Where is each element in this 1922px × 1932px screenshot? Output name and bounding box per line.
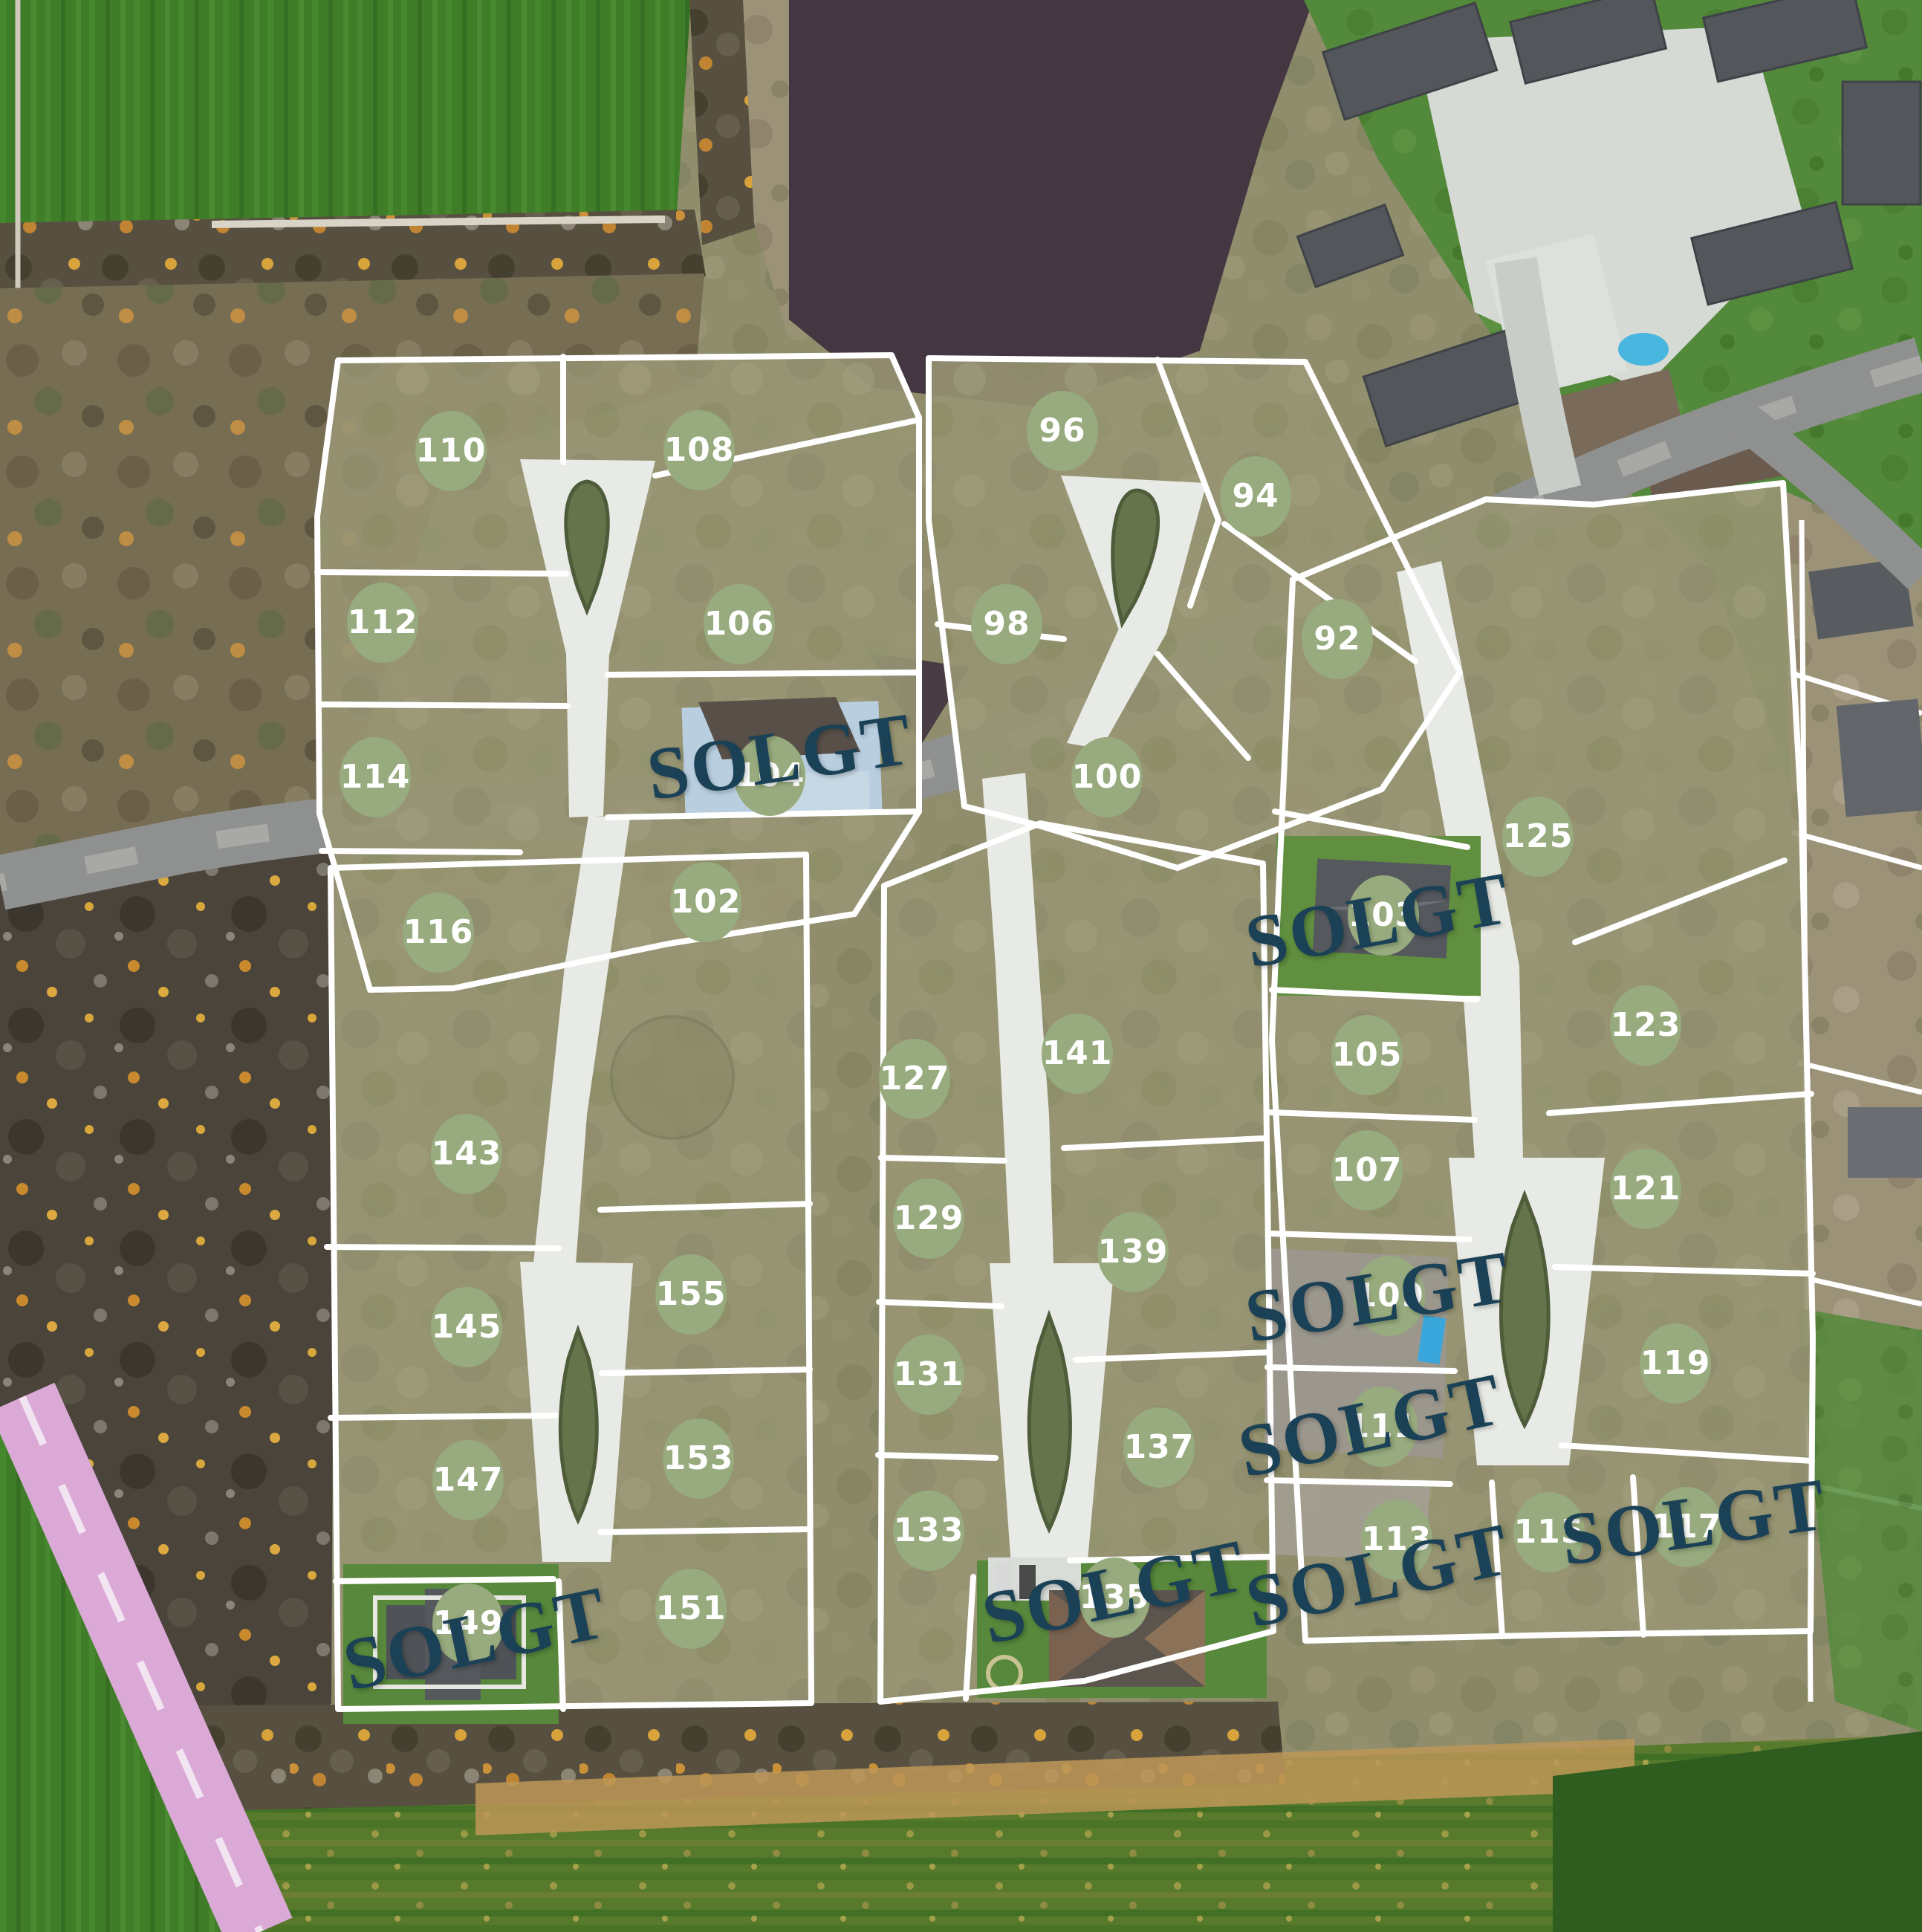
plot-number: 153 bbox=[663, 1442, 734, 1475]
plot-number: 119 bbox=[1640, 1347, 1711, 1380]
plot-badge-123[interactable]: 123 bbox=[1610, 985, 1681, 1066]
plot-number: 121 bbox=[1611, 1173, 1681, 1205]
plot-badge-131[interactable]: 131 bbox=[893, 1335, 964, 1415]
plot-number: 110 bbox=[416, 435, 487, 467]
plot-number: 107 bbox=[1332, 1154, 1403, 1187]
plot-badge-112[interactable]: 112 bbox=[347, 583, 418, 663]
plot-number: 127 bbox=[880, 1063, 950, 1095]
plot-badge-145[interactable]: 145 bbox=[431, 1287, 502, 1367]
plot-badge-94[interactable]: 94 bbox=[1220, 456, 1291, 537]
plot-number: 143 bbox=[432, 1138, 502, 1170]
plot-badge-102[interactable]: 102 bbox=[670, 862, 741, 942]
plot-number: 131 bbox=[894, 1358, 964, 1391]
plot-badge-100[interactable]: 100 bbox=[1071, 737, 1143, 817]
field-top-left-green bbox=[0, 0, 691, 236]
plot-number: 112 bbox=[348, 606, 418, 639]
pool bbox=[1618, 333, 1669, 366]
plot-number: 106 bbox=[704, 608, 775, 641]
plot-badge-107[interactable]: 107 bbox=[1331, 1130, 1403, 1210]
plot-badge-116[interactable]: 116 bbox=[403, 892, 474, 973]
plot-badge-92[interactable]: 92 bbox=[1302, 599, 1373, 679]
plot-number: 151 bbox=[656, 1592, 727, 1625]
plot-number: 108 bbox=[664, 434, 735, 467]
plot-number: 100 bbox=[1072, 761, 1143, 794]
plot-number: 125 bbox=[1503, 820, 1574, 853]
plot-number: 92 bbox=[1314, 623, 1360, 655]
plot-badge-105[interactable]: 105 bbox=[1331, 1015, 1403, 1095]
plot-number: 141 bbox=[1042, 1037, 1113, 1070]
aerial-terrain bbox=[0, 0, 1922, 1932]
plot-number: 147 bbox=[433, 1464, 504, 1497]
plot-number: 105 bbox=[1332, 1039, 1403, 1072]
road-tl bbox=[566, 652, 609, 817]
plot-badge-155[interactable]: 155 bbox=[655, 1254, 727, 1335]
plot-badge-108[interactable]: 108 bbox=[663, 410, 735, 490]
plot-badge-121[interactable]: 121 bbox=[1610, 1149, 1681, 1229]
plot-badge-147[interactable]: 147 bbox=[432, 1440, 504, 1520]
plot-number: 139 bbox=[1098, 1236, 1169, 1268]
plot-badge-151[interactable]: 151 bbox=[655, 1569, 727, 1649]
plot-badge-133[interactable]: 133 bbox=[893, 1491, 964, 1571]
plot-number: 96 bbox=[1039, 415, 1085, 447]
plot-number: 145 bbox=[432, 1311, 502, 1343]
plot-number: 114 bbox=[340, 761, 411, 794]
plot-badge-137[interactable]: 137 bbox=[1123, 1407, 1195, 1488]
plot-badge-153[interactable]: 153 bbox=[663, 1419, 734, 1499]
plot-number: 123 bbox=[1611, 1009, 1681, 1042]
plot-number: 102 bbox=[671, 886, 741, 918]
plot-badge-141[interactable]: 141 bbox=[1042, 1014, 1113, 1094]
house-roof bbox=[1837, 698, 1922, 817]
plot-badge-110[interactable]: 110 bbox=[415, 411, 487, 491]
plot-badge-106[interactable]: 106 bbox=[704, 584, 775, 664]
field-track-line bbox=[212, 219, 665, 224]
plot-badge-98[interactable]: 98 bbox=[971, 584, 1042, 664]
plot-number: 116 bbox=[403, 916, 474, 949]
plot-badge-125[interactable]: 125 bbox=[1502, 797, 1574, 877]
house-roof bbox=[1843, 82, 1921, 204]
plot-number: 129 bbox=[894, 1202, 964, 1235]
plot-badge-129[interactable]: 129 bbox=[893, 1179, 964, 1259]
earth-mound bbox=[611, 1017, 733, 1138]
plot-number: 94 bbox=[1232, 480, 1279, 513]
plot-badge-127[interactable]: 127 bbox=[879, 1039, 950, 1119]
plot-badge-119[interactable]: 119 bbox=[1640, 1323, 1711, 1404]
house-roof bbox=[1848, 1107, 1922, 1178]
plot-map: 1101089694112106989211410410011610212510… bbox=[0, 0, 1922, 1932]
plot-number: 137 bbox=[1124, 1431, 1195, 1464]
plot-badge-143[interactable]: 143 bbox=[431, 1114, 502, 1194]
plot-number: 155 bbox=[656, 1278, 727, 1311]
plot-badge-114[interactable]: 114 bbox=[340, 737, 411, 817]
plot-number: 98 bbox=[983, 608, 1030, 641]
plot-number: 133 bbox=[894, 1514, 964, 1547]
plot-badge-139[interactable]: 139 bbox=[1097, 1212, 1169, 1292]
plot-badge-96[interactable]: 96 bbox=[1027, 391, 1098, 471]
